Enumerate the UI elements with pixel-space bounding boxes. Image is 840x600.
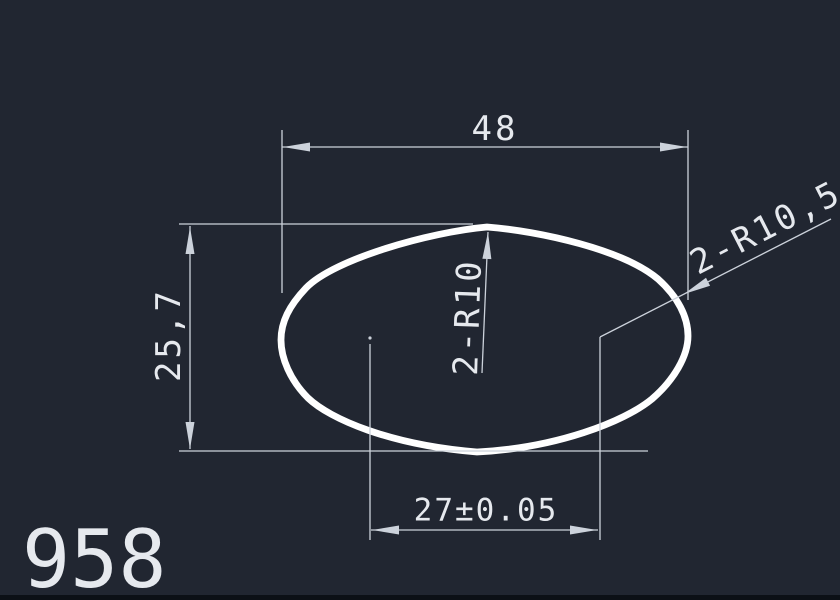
arc-center-left-mark: [368, 336, 371, 339]
dim-width-arrow-left: [283, 143, 310, 152]
dim-inner-width-label: 27±0.05: [414, 496, 559, 527]
part-number-label: 958: [22, 520, 167, 600]
dim-height-label: 25,7: [152, 288, 186, 382]
dim-width-label: 48: [472, 112, 519, 146]
dim-top-radius-label: 2-R10: [449, 258, 487, 376]
dim-height-arrow-bottom: [186, 422, 195, 449]
leader-top-radius-arrow: [482, 232, 492, 259]
dim-inner-arrow-left: [372, 526, 399, 535]
cad-canvas: 48 25,7 2-R10 2-R10,5 27±0.05 958: [0, 0, 840, 600]
bottom-edge-bar: [0, 595, 840, 600]
dim-height: [179, 224, 648, 451]
dim-width-arrow-right: [660, 143, 687, 152]
dim-height-arrow-top: [186, 227, 195, 254]
dim-inner-arrow-right: [570, 526, 597, 535]
